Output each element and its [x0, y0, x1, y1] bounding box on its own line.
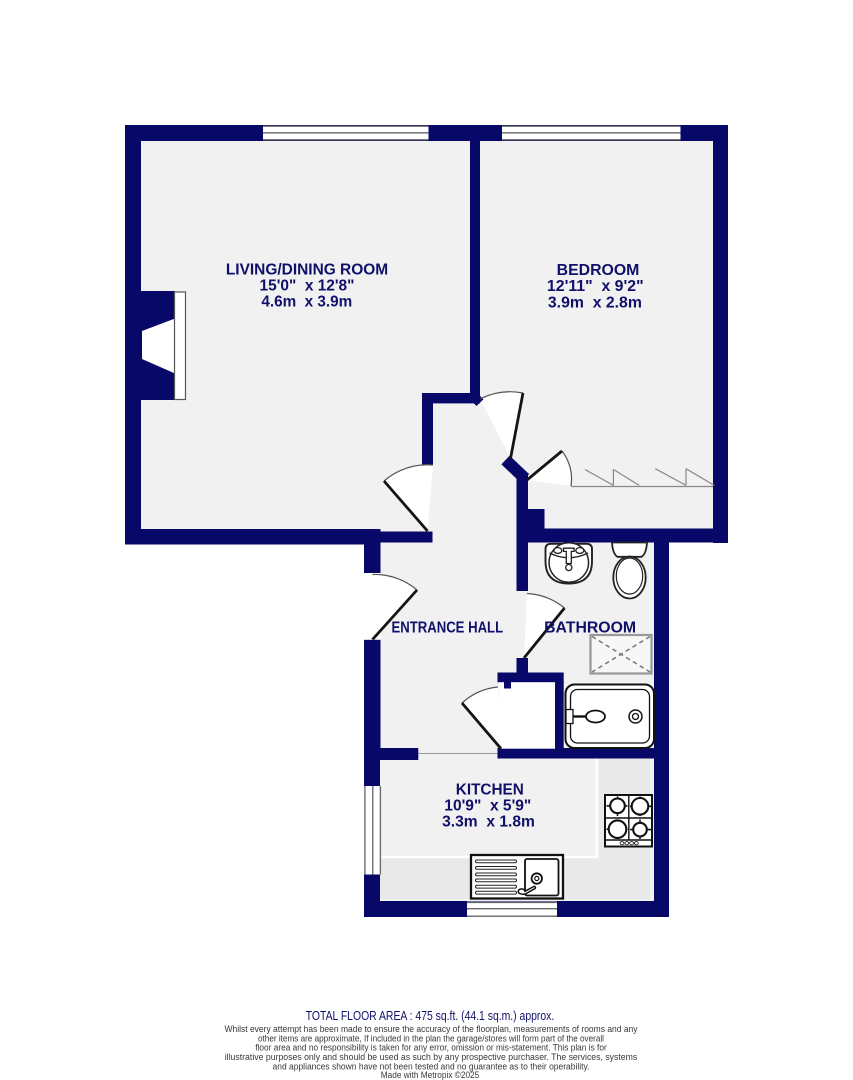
svg-text:4.6m x 3.9m: 4.6m x 3.9m: [261, 294, 352, 311]
svg-text:KITCHEN: KITCHEN: [456, 782, 524, 799]
svg-text:LIVING/DINING ROOM: LIVING/DINING ROOM: [226, 262, 388, 279]
svg-text:Made with Metropix ©2025: Made with Metropix ©2025: [381, 1070, 480, 1080]
svg-text:3.3m x 1.8m: 3.3m x 1.8m: [442, 814, 535, 831]
svg-text:12'11" x 9'2": 12'11" x 9'2": [547, 278, 644, 295]
svg-text:TOTAL FLOOR AREA : 475 sq.ft.: TOTAL FLOOR AREA : 475 sq.ft. (44.1 sq.m…: [306, 1008, 555, 1023]
svg-text:10'9" x 5'9": 10'9" x 5'9": [444, 798, 531, 815]
svg-text:3.9m x 2.8m: 3.9m x 2.8m: [548, 294, 642, 311]
svg-text:BEDROOM: BEDROOM: [557, 262, 640, 279]
svg-text:15'0" x 12'8": 15'0" x 12'8": [260, 278, 355, 295]
svg-text:BATHROOM: BATHROOM: [544, 620, 636, 637]
svg-text:ENTRANCE HALL: ENTRANCE HALL: [392, 620, 504, 637]
